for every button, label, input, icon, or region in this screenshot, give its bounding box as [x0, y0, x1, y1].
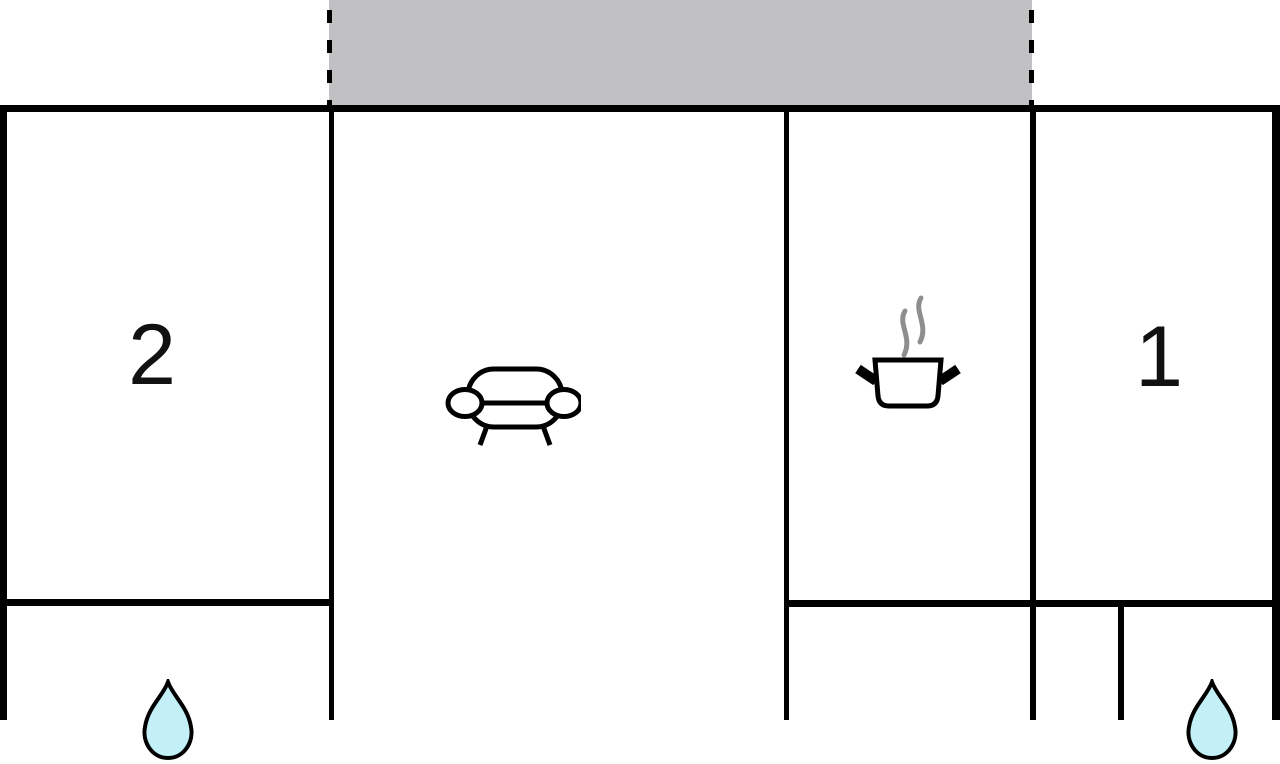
cooking-pot-icon: [852, 292, 964, 412]
balcony-area: [329, 0, 1032, 105]
water-drop-icon: [1183, 679, 1241, 764]
room-below-kitchen: [789, 607, 1030, 720]
room-2-label: 2: [128, 312, 176, 398]
water-drop-icon: [139, 679, 197, 764]
steam-icon: [903, 298, 923, 355]
outer-wall-right: [1272, 105, 1280, 720]
interior-wall-bedroom2-bathroom: [0, 599, 334, 606]
balcony-boundary-dashed-line: [1027, 0, 1036, 105]
balcony-boundary-dashed-line: [325, 0, 334, 105]
floor-plan: 2 1: [0, 0, 1280, 720]
outer-wall-left: [0, 105, 7, 720]
sofa-icon: [444, 364, 581, 448]
room-1-label: 1: [1135, 314, 1183, 400]
room-closet: [1036, 607, 1118, 720]
interior-wall-kitchen-hall: [784, 600, 1280, 607]
outer-wall-top: [0, 105, 1280, 112]
